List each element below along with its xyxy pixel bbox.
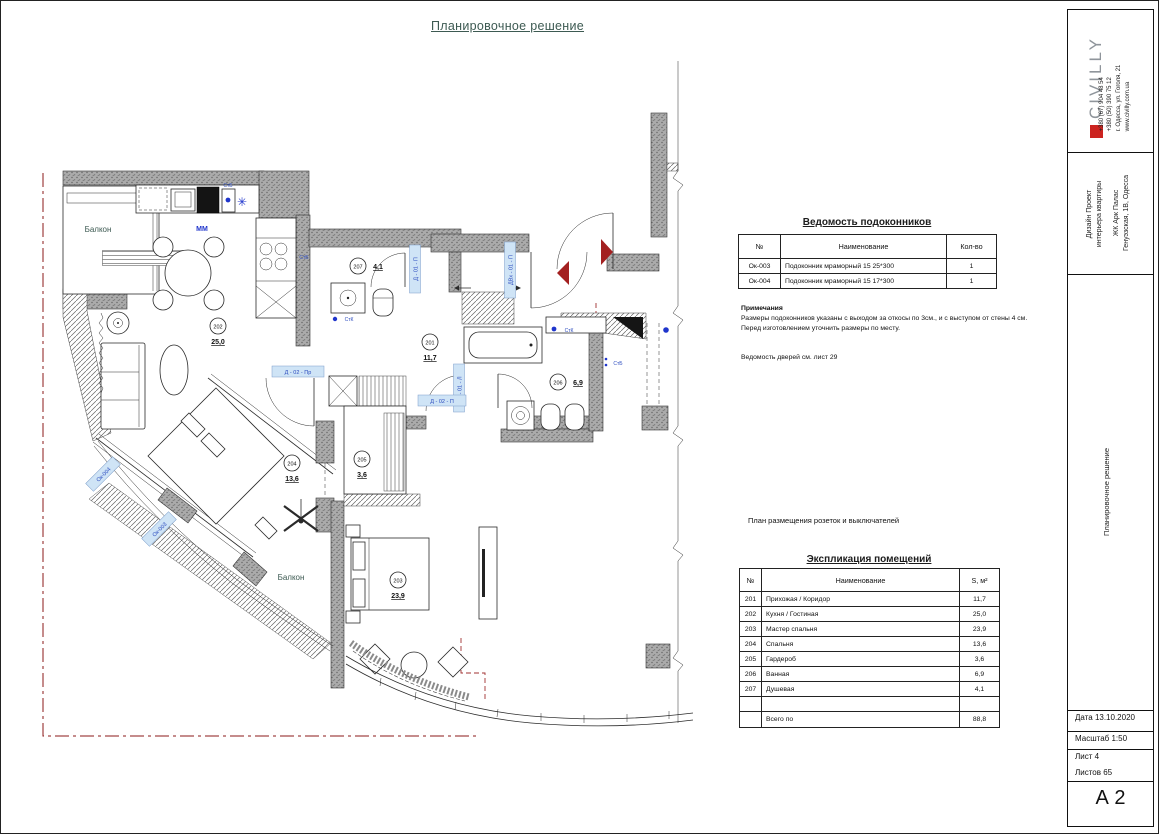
table-row: 202Кухня / Гостиная25,0 (740, 607, 1000, 622)
project-address: ЖК Арк ПаласГенуэзская, 1В, Одесса (1112, 158, 1132, 268)
drawing-sheet: Планировочное решение .w{fill:url(#pw);s… (0, 0, 1159, 834)
bathroom-206: СтК СтБ (464, 327, 669, 430)
table-row: Ок-004 Подоконник мраморный 15 17*300 1 (739, 274, 997, 289)
snowflake-icon: ✳ (237, 195, 247, 209)
doors-note: Ведомость дверей см. лист 29 (741, 353, 837, 363)
svg-text:4,1: 4,1 (373, 264, 383, 271)
balcony-top-label: Балкон (85, 225, 112, 234)
explication-title: Экспликация помещений (739, 554, 999, 565)
svg-text:206: 206 (553, 381, 562, 387)
svg-text:13,6: 13,6 (285, 476, 299, 483)
table-row: 205Гардероб3,6 (740, 652, 1000, 667)
scale-field: Масштаб 1:50 (1068, 731, 1153, 749)
table-row (740, 697, 1000, 712)
brand-contacts: +380 (67) 904 48 54 +380 (50) 390 75 12 … (1093, 43, 1137, 153)
svg-text:203: 203 (393, 579, 402, 585)
floor-plan: .w{fill:url(#pw);stroke:#333;stroke-widt… (1, 1, 721, 801)
door-swing-marker-left (557, 261, 569, 285)
svg-text:11,7: 11,7 (423, 355, 436, 362)
title-block: CIVILLY +380 (67) 904 48 54 +380 (50) 39… (1067, 9, 1154, 827)
sheet-name-vertical: Планировочное решение (1099, 432, 1113, 552)
building-break-line (673, 61, 683, 723)
svg-text:207: 207 (353, 265, 362, 271)
table-row: 206Ванная6,9 (740, 667, 1000, 682)
sill-table-title: Ведомость подоконников (738, 217, 996, 228)
explication-table: № Наименование S, м² 201Прихожая / Корид… (739, 568, 1000, 728)
sockets-plan-note: План размещения розеток и выключателей (748, 516, 899, 525)
date-field: Дата 13.10.2020 (1068, 710, 1153, 731)
wardrobe-205 (329, 376, 406, 494)
svg-text:205: 205 (357, 458, 366, 464)
living-area (99, 312, 188, 429)
door-tag-entry: ДВх - 01 - П (509, 255, 515, 285)
svg-text:23,9: 23,9 (391, 593, 405, 600)
appliance-tag-mm: MM (196, 226, 208, 233)
wall-tag-stb-kitchen: СтБ (223, 183, 233, 189)
format-label: А 2 (1068, 781, 1153, 826)
table-total-row: Всего по88,8 (740, 712, 1000, 728)
project-type: Дизайн Проектинтерьера квартиры (1085, 159, 1105, 269)
wall-tag-stk-shower: СтК (345, 317, 354, 323)
wall-tag-stb-bath: СтБ (613, 361, 623, 367)
wall-tag-stk-bath: СтК (565, 328, 574, 334)
wall-tag-stb-column: СтБ (299, 255, 309, 261)
svg-text:25,0: 25,0 (211, 339, 225, 346)
svg-text:204: 204 (287, 462, 296, 468)
sill-notes: Примечания Размеры подоконников указаны … (741, 304, 1041, 335)
sheet-number-field: Лист 4 (1068, 749, 1153, 765)
table-row: 207Душевая4,1 (740, 682, 1000, 697)
svg-text:3,6: 3,6 (357, 472, 367, 479)
door-tag-shower: Д - 01 - П (414, 257, 420, 281)
shower-room-207: СтК (331, 283, 393, 323)
door-tag-master: Д - 02 - П (430, 399, 454, 405)
table-row: Ок-003 Подоконник мраморный 15 25*300 1 (739, 259, 997, 274)
sheet-count-field: Листов 65 (1068, 765, 1153, 781)
table-row: 203Мастер спальня23,9 (740, 622, 1000, 637)
svg-text:6,9: 6,9 (573, 380, 583, 387)
svg-text:201: 201 (425, 341, 434, 347)
balcony-bottom-label: Балкон (278, 573, 305, 582)
oven-icon (197, 187, 219, 213)
master-bedroom-203 (346, 525, 497, 701)
svg-text:202: 202 (213, 325, 222, 331)
door-tag-bedroom: Д - 02 - Пр (285, 370, 312, 376)
table-row: 204Спальня13,6 (740, 637, 1000, 652)
sill-table: № Наименование Кол-во Ок-003 Подоконник … (738, 234, 997, 289)
table-row: 201Прихожая / Коридор11,7 (740, 592, 1000, 607)
